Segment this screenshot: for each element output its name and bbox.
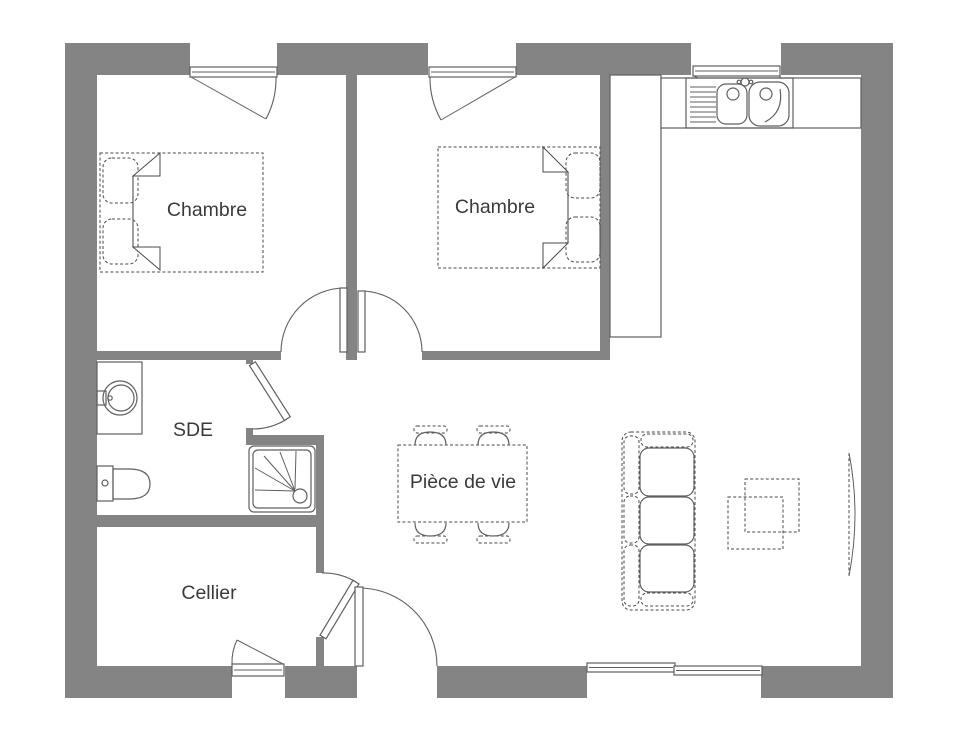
toilet-icon	[97, 466, 150, 501]
headboard-icon	[543, 147, 568, 268]
room-label-cellar: Cellier	[181, 582, 237, 604]
tv-icon	[849, 453, 855, 576]
entrance-door-icon	[355, 587, 437, 666]
wall-cellar-door-stub	[316, 637, 324, 666]
bedroom2-door-icon	[358, 291, 422, 352]
bedroom1-door-icon	[281, 288, 347, 352]
nightstand-icon	[566, 153, 600, 198]
headboard-icon	[133, 153, 160, 270]
wall-bottom-3	[437, 666, 587, 698]
bedroom2-window-icon	[429, 67, 516, 120]
wall-bedroom2-right	[600, 75, 610, 359]
wall-sde-cellar-divider	[97, 515, 324, 527]
bay-window-icon	[587, 663, 762, 675]
windows	[190, 66, 781, 676]
washbasin-icon	[97, 362, 142, 434]
living-room-furniture	[398, 426, 855, 610]
room-label-living-room: Pièce de vie	[410, 471, 516, 493]
wall-right	[861, 43, 893, 698]
wall-shower-nook-top	[246, 435, 324, 445]
kitchen-counter-vertical	[610, 75, 661, 337]
wall-between-bedrooms	[346, 75, 357, 360]
shower-room-door-icon	[249, 362, 290, 429]
nightstand-icon	[566, 217, 600, 262]
wall-bedroom2-bottom	[422, 351, 610, 360]
wall-left	[65, 43, 97, 698]
chair-back-icon	[477, 536, 510, 543]
floor-plan-canvas: Chambre Chambre SDE Cellier Pièce de vie	[0, 0, 960, 742]
chair-seat-icon	[478, 432, 509, 445]
coffee-table-icon	[745, 479, 799, 532]
room-label-bedroom1: Chambre	[167, 199, 247, 221]
wall-sde-stub-top	[246, 351, 253, 364]
cellar-window-icon	[232, 640, 284, 676]
wall-top-2	[277, 43, 428, 75]
kitchen-counter-horizontal	[661, 78, 861, 128]
wall-bedroom1-bottom	[97, 351, 281, 360]
doors	[249, 288, 437, 666]
chair-seat-icon	[415, 432, 446, 445]
wall-cellar-right	[316, 445, 324, 573]
cellar-door-icon	[320, 573, 359, 639]
shower-tray-icon	[249, 446, 315, 512]
chair-back-icon	[414, 536, 447, 543]
chair-seat-icon	[415, 523, 446, 536]
coffee-table-icon	[728, 497, 783, 549]
chair-seat-icon	[478, 523, 509, 536]
wall-bottom-2	[285, 666, 357, 698]
wall-top-3	[516, 43, 691, 75]
bedroom1-window-icon	[190, 67, 277, 119]
floor-plan-drawing: Chambre Chambre SDE Cellier Pièce de vie	[0, 0, 960, 742]
room-label-shower-room: SDE	[173, 419, 213, 441]
kitchen	[610, 75, 861, 337]
room-label-bedroom2: Chambre	[455, 196, 535, 218]
sofa-icon	[622, 432, 695, 610]
